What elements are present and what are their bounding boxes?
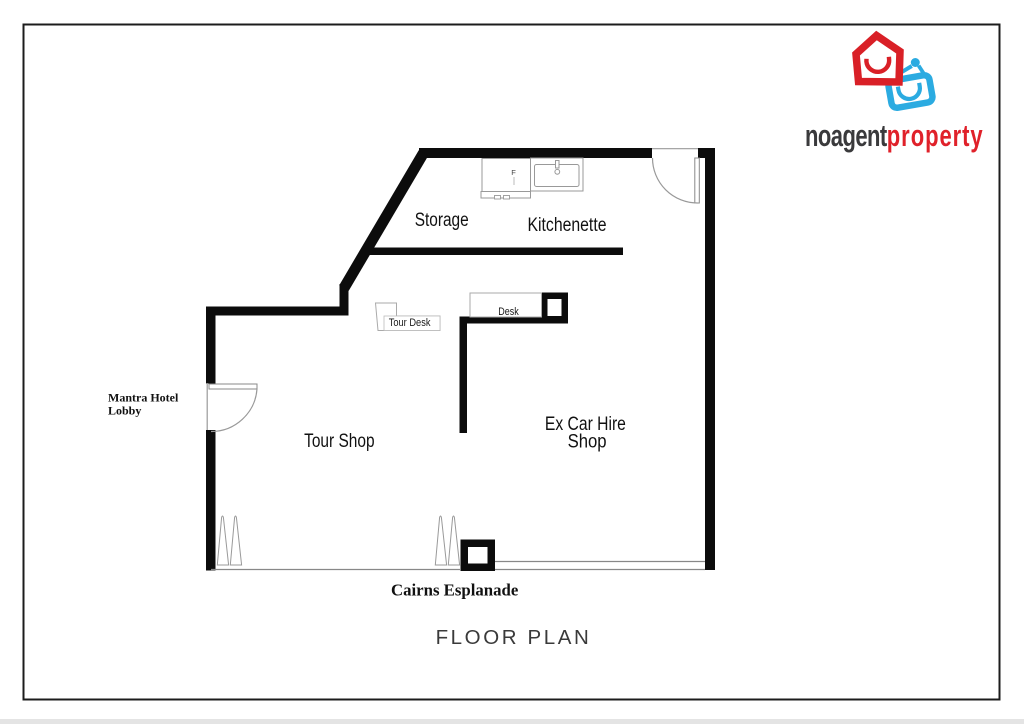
- svg-text:F: F: [511, 168, 516, 177]
- svg-text:Storage: Storage: [415, 210, 469, 231]
- svg-text:FLOOR PLAN: FLOOR PLAN: [436, 626, 592, 649]
- svg-text:Tour Desk: Tour Desk: [389, 317, 431, 329]
- svg-text:Desk: Desk: [498, 306, 519, 318]
- svg-text:Mantra Hotel: Mantra Hotel: [108, 391, 179, 405]
- svg-text:property: property: [887, 118, 984, 153]
- svg-text:Lobby: Lobby: [108, 404, 141, 418]
- svg-text:Shop: Shop: [568, 432, 607, 453]
- svg-text:noagent: noagent: [805, 118, 887, 153]
- svg-text:Kitchenette: Kitchenette: [528, 215, 607, 236]
- svg-text:Tour Shop: Tour Shop: [304, 431, 375, 452]
- svg-text:Cairns Esplanade: Cairns Esplanade: [391, 581, 519, 600]
